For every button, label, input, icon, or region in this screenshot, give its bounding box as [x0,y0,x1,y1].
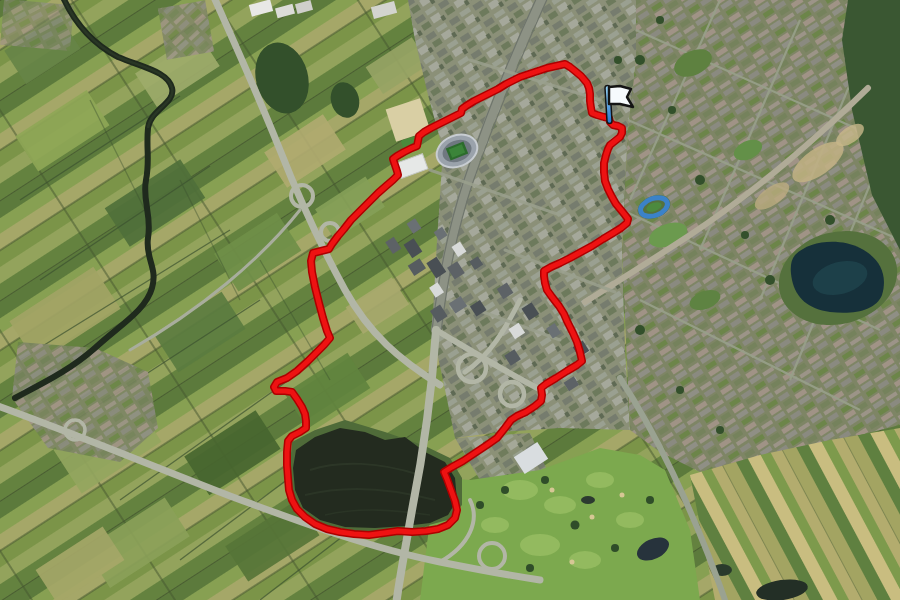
satellite-map[interactable] [0,0,900,600]
